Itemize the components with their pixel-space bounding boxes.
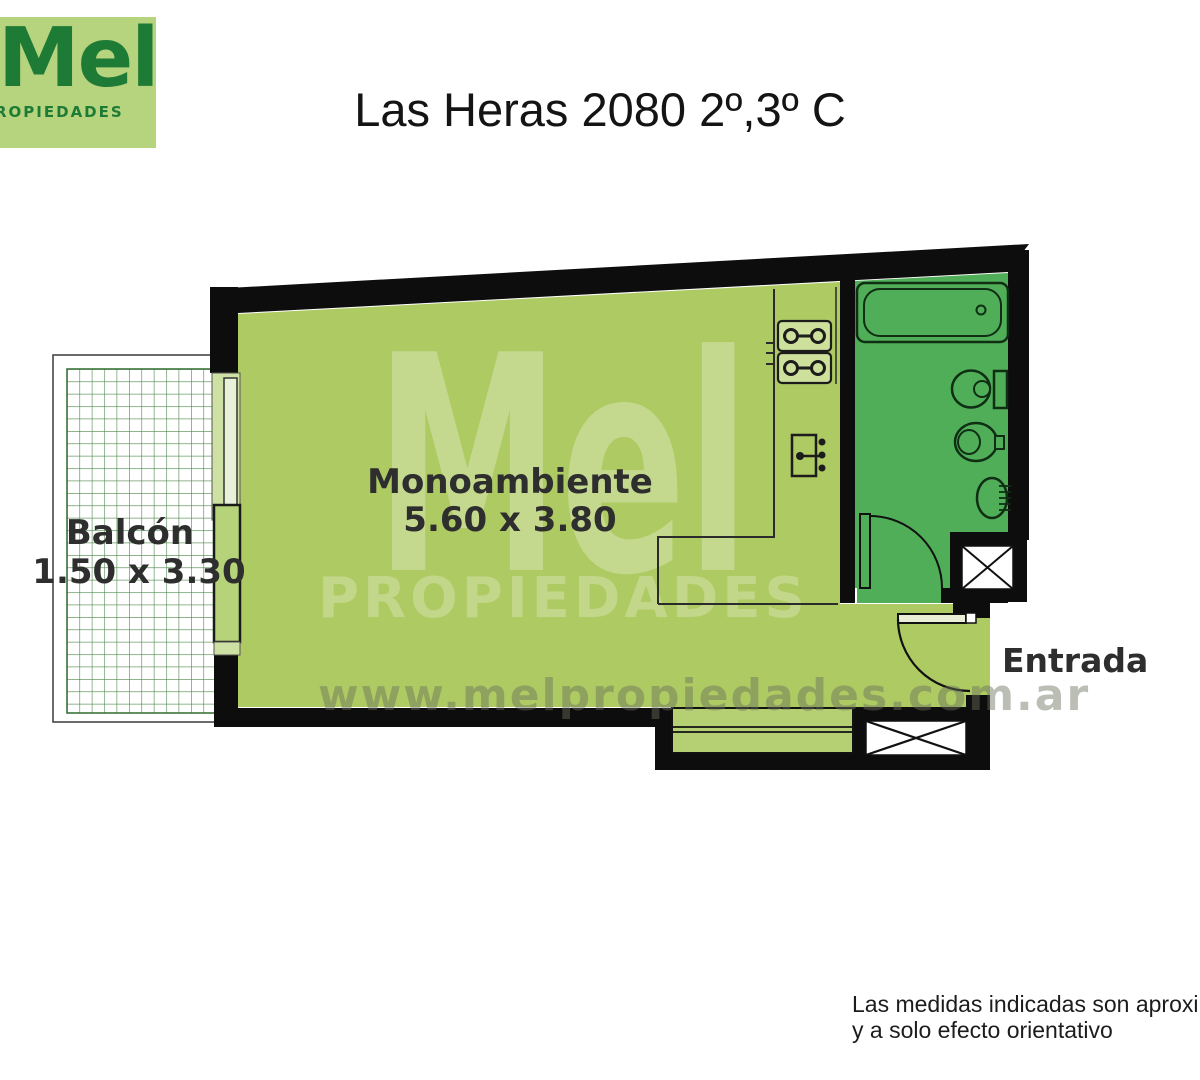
window-sill-lower (214, 642, 240, 655)
balcony-dimensions: 1.50 x 3.30 (19, 552, 259, 592)
disclaimer-line1: Las medidas indicadas son aproximadas (852, 991, 1200, 1017)
page-title: Las Heras 2080 2º,3º C (0, 82, 1200, 137)
wall-right (1008, 250, 1029, 540)
entrance-door-hinge (966, 613, 976, 623)
air-shaft-upper (962, 546, 1013, 589)
watermark-url-text: www.melpropiedades.com.ar (318, 670, 1090, 721)
wall-left-upper (210, 287, 238, 373)
balcony-label: Balcón (20, 513, 240, 553)
window (224, 378, 237, 518)
floor-plan-page: { "header": { "logo": { "name": "Mel", "… (0, 0, 1200, 1080)
watermark-subtitle-text: PROPIEDADES (318, 566, 809, 631)
wall-bathroom-left (840, 276, 855, 603)
bathroom-threshold (857, 588, 941, 603)
disclaimer: Las medidas indicadas son aproximadas y … (852, 991, 1200, 1043)
disclaimer-line2: y a solo efecto orientativo (852, 1017, 1200, 1043)
bathroom-door-leaf (860, 514, 870, 588)
room-dimensions: 5.60 x 3.80 (330, 500, 690, 540)
room-label: Monoambiente (330, 462, 690, 502)
stove-burners-icon (778, 321, 831, 383)
entrance-label: Entrada (1002, 641, 1148, 680)
air-shaft-lower (866, 721, 966, 755)
toilet-icon (952, 371, 1007, 409)
entrance-door-leaf (898, 614, 966, 623)
